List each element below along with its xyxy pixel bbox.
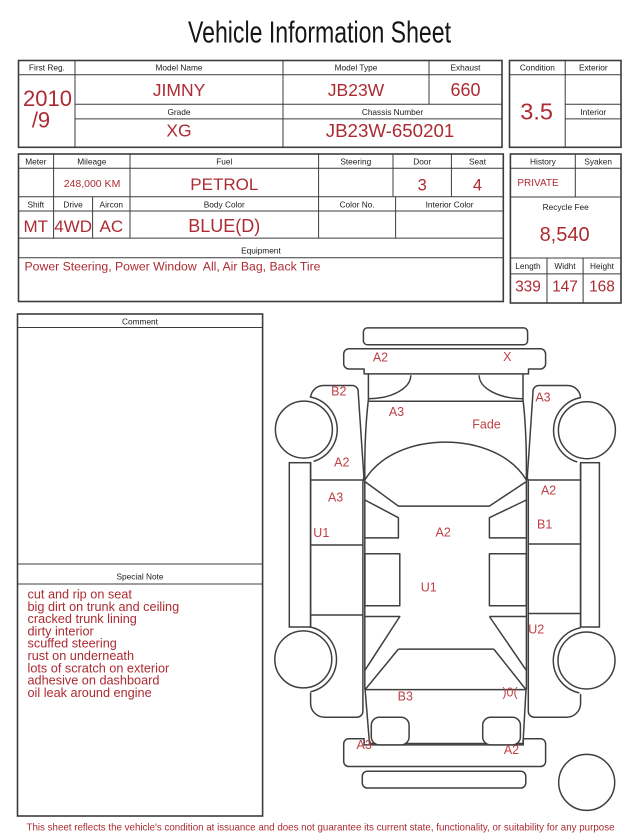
svg-text:Length: Length (515, 261, 541, 271)
svg-text:660: 660 (451, 80, 481, 100)
svg-text:U2: U2 (528, 623, 544, 637)
svg-text:AC: AC (99, 217, 123, 236)
svg-text:U1: U1 (313, 526, 329, 540)
svg-text:Aircon: Aircon (100, 199, 124, 209)
svg-text:A2: A2 (373, 351, 388, 365)
svg-text:Height: Height (590, 261, 615, 271)
svg-text:Chassis Number: Chassis Number (362, 107, 424, 117)
svg-text:8,540: 8,540 (540, 224, 590, 246)
svg-text:Fade: Fade (472, 418, 501, 432)
svg-text:A3: A3 (357, 738, 372, 752)
svg-text:Condition: Condition (520, 63, 555, 73)
svg-text:Color No.: Color No. (340, 199, 375, 209)
svg-text:Mileage: Mileage (77, 157, 106, 167)
svg-text:BLUE(D): BLUE(D) (188, 216, 260, 236)
svg-text:B1: B1 (537, 517, 552, 531)
svg-text:/9: /9 (32, 108, 50, 133)
svg-text:Comment: Comment (122, 317, 159, 327)
svg-text:B3: B3 (398, 690, 413, 704)
svg-text:4: 4 (473, 177, 482, 195)
svg-text:A3: A3 (389, 405, 404, 419)
svg-text:MT: MT (24, 217, 49, 236)
svg-text:U1: U1 (421, 581, 437, 595)
svg-text:A2: A2 (334, 456, 349, 470)
svg-text:A2: A2 (541, 484, 556, 498)
svg-text:First Reg.: First Reg. (29, 63, 65, 73)
svg-text:Power Steering, Power Window: Power Steering, Power Window All, Air Ba… (25, 260, 321, 274)
svg-text:JIMNY: JIMNY (153, 80, 206, 100)
svg-text:Exterior: Exterior (579, 63, 608, 73)
svg-text:Recycle Fee: Recycle Fee (543, 202, 589, 212)
svg-text:Vehicle Information Sheet: Vehicle Information Sheet (188, 15, 451, 50)
svg-text:PETROL: PETROL (190, 175, 258, 194)
svg-text:Seat: Seat (469, 157, 487, 167)
svg-text:Fuel: Fuel (216, 157, 232, 167)
svg-text:Interior: Interior (580, 107, 606, 117)
svg-text:History: History (530, 157, 557, 167)
svg-text:Body Color: Body Color (204, 199, 245, 209)
svg-text:PRIVATE: PRIVATE (517, 178, 559, 189)
svg-text:Equipment: Equipment (241, 245, 281, 255)
svg-text:X: X (503, 350, 512, 364)
svg-text:oil leak around engine: oil leak around engine (28, 686, 152, 700)
svg-text:Exhaust: Exhaust (451, 63, 482, 73)
svg-text:147: 147 (552, 279, 578, 296)
svg-text:JB23W-650201: JB23W-650201 (326, 120, 455, 141)
svg-text:Syaken: Syaken (584, 157, 612, 167)
svg-text:Drive: Drive (63, 199, 83, 209)
svg-text:JB23W: JB23W (328, 80, 385, 100)
svg-text:XG: XG (166, 121, 191, 141)
svg-text:Grade: Grade (167, 107, 190, 117)
svg-text:248,000 KM: 248,000 KM (64, 178, 121, 190)
svg-text:A2: A2 (504, 743, 519, 757)
svg-text:Model Type: Model Type (335, 63, 378, 73)
svg-text:Special Note: Special Note (116, 572, 163, 582)
svg-text:339: 339 (515, 279, 541, 296)
svg-text:A3: A3 (535, 391, 550, 405)
svg-text:Shift: Shift (27, 199, 44, 209)
svg-text:4WD: 4WD (54, 217, 92, 236)
svg-text:A2: A2 (436, 526, 451, 540)
svg-text:Door: Door (413, 157, 431, 167)
svg-text:3: 3 (418, 177, 427, 195)
svg-text:A3: A3 (328, 491, 343, 505)
svg-text:168: 168 (589, 279, 615, 296)
svg-text:Interior Color: Interior Color (426, 199, 474, 209)
svg-text:)0(: )0( (502, 685, 518, 699)
svg-text:Meter: Meter (25, 157, 46, 167)
svg-text:Steering: Steering (340, 157, 371, 167)
svg-text:B2: B2 (331, 385, 346, 399)
svg-text:This sheet reflects the vehicl: This sheet reflects the vehicle's condit… (27, 822, 615, 834)
svg-text:3.5: 3.5 (520, 99, 553, 125)
svg-text:Model Name: Model Name (155, 63, 202, 73)
svg-text:Widht: Widht (554, 261, 576, 271)
